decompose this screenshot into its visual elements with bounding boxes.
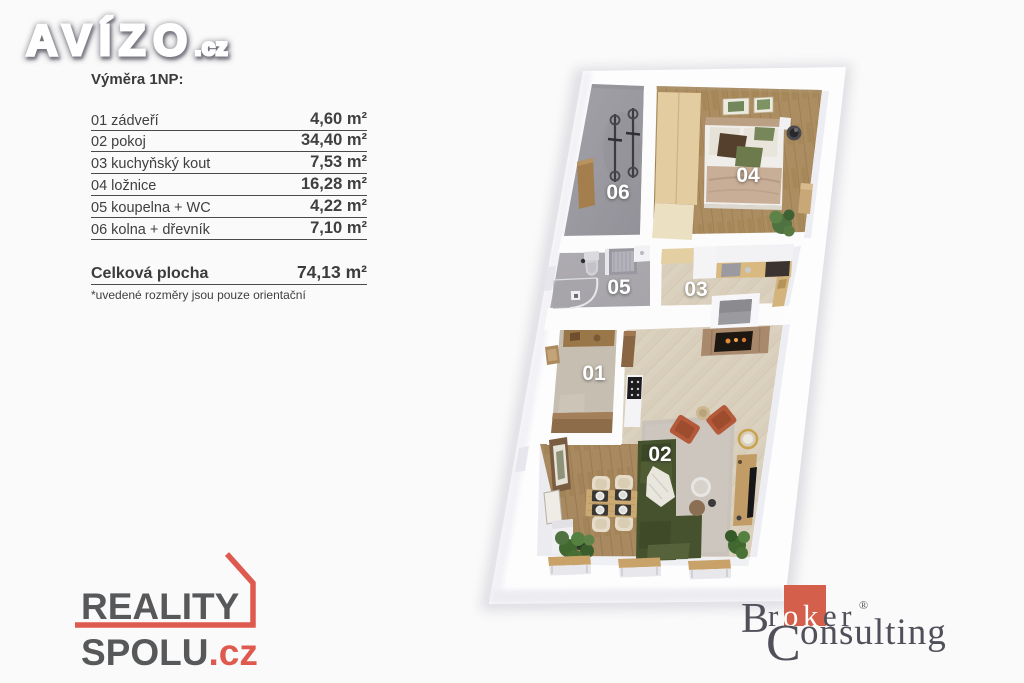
svg-text:01: 01 — [582, 362, 606, 385]
svg-text:04: 04 — [736, 164, 760, 187]
svg-text:02: 02 — [648, 443, 671, 466]
svg-text:03: 03 — [684, 278, 707, 301]
svg-text:06: 06 — [606, 181, 629, 204]
svg-text:05: 05 — [607, 276, 631, 299]
